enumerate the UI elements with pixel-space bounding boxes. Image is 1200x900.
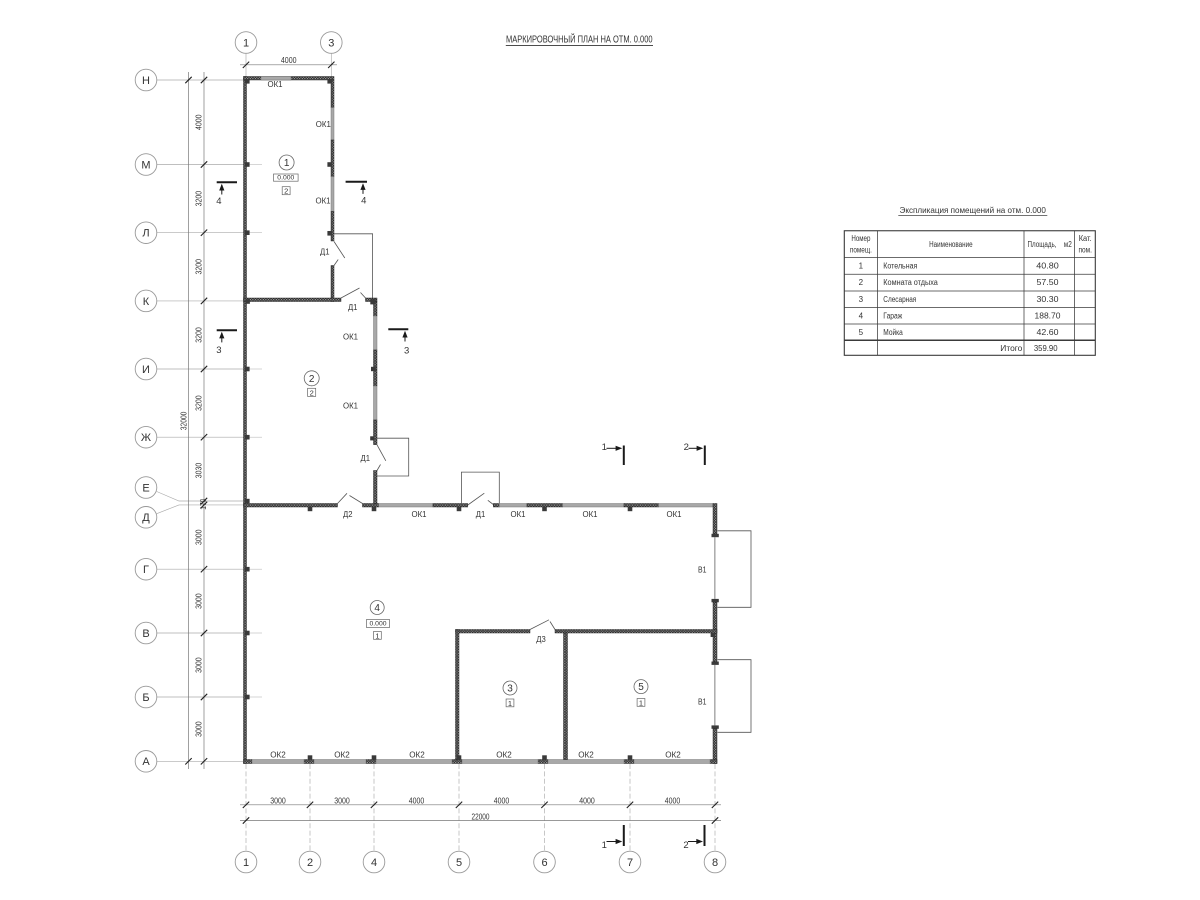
svg-text:Д1: Д1: [320, 247, 330, 257]
svg-text:4: 4: [216, 196, 221, 207]
svg-text:Экспликация помещений на отм.: Экспликация помещений на отм. 0.000: [900, 205, 1046, 215]
svg-text:3: 3: [404, 345, 409, 356]
svg-text:Ж: Ж: [141, 432, 151, 444]
svg-text:2: 2: [683, 840, 688, 851]
svg-text:помещ.: помещ.: [850, 245, 872, 254]
svg-text:Площадь,: Площадь,: [1028, 240, 1057, 249]
svg-text:ОК2: ОК2: [578, 749, 594, 759]
svg-text:Е: Е: [142, 482, 149, 494]
svg-text:5: 5: [859, 328, 864, 337]
svg-text:ОК1: ОК1: [316, 195, 331, 205]
svg-text:3: 3: [859, 295, 864, 304]
svg-text:В: В: [142, 628, 149, 640]
svg-text:4000: 4000: [494, 797, 510, 806]
svg-text:ОК1: ОК1: [268, 79, 283, 89]
svg-text:0.000: 0.000: [277, 175, 294, 182]
svg-text:1: 1: [859, 262, 864, 271]
svg-text:4000: 4000: [409, 797, 425, 806]
svg-text:5: 5: [638, 682, 644, 693]
svg-text:359.90: 359.90: [1034, 344, 1058, 353]
svg-text:ОК2: ОК2: [409, 749, 425, 759]
svg-text:8: 8: [712, 857, 718, 869]
svg-text:ОК1: ОК1: [511, 509, 526, 519]
svg-text:В1: В1: [698, 565, 707, 575]
svg-text:Б: Б: [142, 692, 149, 704]
svg-text:Слесарная: Слесарная: [883, 295, 916, 304]
svg-text:1: 1: [284, 158, 290, 169]
svg-text:Мойка: Мойка: [883, 328, 903, 337]
svg-text:Д1: Д1: [476, 509, 486, 519]
svg-text:2: 2: [310, 388, 314, 397]
svg-text:0.000: 0.000: [370, 620, 387, 627]
svg-text:Г: Г: [143, 564, 149, 576]
svg-text:1: 1: [375, 631, 379, 640]
svg-text:К: К: [143, 296, 150, 308]
svg-text:1: 1: [602, 442, 607, 453]
svg-text:ОК1: ОК1: [343, 332, 358, 342]
svg-text:В1: В1: [698, 696, 707, 706]
svg-text:1: 1: [602, 840, 607, 851]
svg-text:3000: 3000: [334, 797, 350, 806]
svg-text:2: 2: [684, 442, 689, 453]
svg-text:Д3: Д3: [536, 634, 546, 644]
svg-text:Итого: Итого: [1000, 344, 1023, 353]
svg-text:3200: 3200: [194, 327, 203, 343]
svg-text:Л: Л: [142, 228, 149, 240]
svg-text:1: 1: [243, 37, 249, 49]
svg-text:ОК1: ОК1: [412, 509, 427, 519]
svg-text:3: 3: [507, 684, 513, 695]
svg-text:42.60: 42.60: [1037, 328, 1060, 337]
svg-text:30.30: 30.30: [1037, 295, 1060, 304]
svg-text:ОК1: ОК1: [316, 119, 331, 129]
svg-text:57.50: 57.50: [1037, 278, 1060, 287]
svg-text:Д: Д: [142, 512, 150, 524]
svg-text:3200: 3200: [194, 395, 203, 411]
svg-text:А: А: [142, 756, 150, 768]
svg-text:ОК1: ОК1: [583, 509, 598, 519]
svg-text:4000: 4000: [281, 56, 297, 65]
svg-text:Комната отдыха: Комната отдыха: [883, 278, 938, 287]
svg-text:Д1: Д1: [361, 453, 371, 463]
svg-text:ОК2: ОК2: [270, 749, 286, 759]
svg-text:2: 2: [284, 187, 288, 196]
svg-text:2: 2: [307, 857, 313, 869]
svg-text:4: 4: [374, 603, 380, 614]
svg-text:7: 7: [627, 857, 633, 869]
svg-text:188.70: 188.70: [1035, 312, 1062, 321]
svg-text:3000: 3000: [270, 797, 286, 806]
svg-text:1: 1: [243, 857, 249, 869]
svg-text:3200: 3200: [194, 190, 203, 206]
svg-text:Номер: Номер: [851, 234, 870, 243]
svg-text:3030: 3030: [194, 462, 203, 478]
svg-text:4000: 4000: [665, 797, 681, 806]
svg-text:3: 3: [328, 37, 334, 49]
svg-text:4000: 4000: [194, 114, 203, 130]
svg-text:Н: Н: [142, 75, 150, 87]
svg-text:м2: м2: [1064, 240, 1072, 249]
svg-text:Наименование: Наименование: [929, 240, 973, 249]
svg-text:40.80: 40.80: [1036, 262, 1059, 271]
svg-text:6: 6: [541, 857, 547, 869]
svg-text:Д1: Д1: [348, 302, 358, 312]
svg-text:3000: 3000: [194, 657, 203, 673]
svg-text:ОК2: ОК2: [665, 749, 681, 759]
svg-text:3000: 3000: [194, 529, 203, 545]
svg-text:22000: 22000: [472, 812, 490, 821]
svg-text:4000: 4000: [579, 797, 595, 806]
svg-text:Котельная: Котельная: [883, 262, 917, 271]
svg-text:ОК1: ОК1: [667, 509, 682, 519]
svg-text:3000: 3000: [194, 721, 203, 737]
svg-text:32000: 32000: [179, 411, 188, 430]
svg-text:Гараж: Гараж: [883, 312, 903, 321]
svg-text:МАРКИРОВОЧНЫЙ ПЛАН НА ОТМ. 0.0: МАРКИРОВОЧНЫЙ ПЛАН НА ОТМ. 0.000: [506, 34, 653, 46]
svg-text:Кат.: Кат.: [1079, 234, 1092, 243]
svg-text:М: М: [141, 159, 150, 171]
svg-text:пом.: пом.: [1078, 245, 1092, 254]
svg-text:4: 4: [371, 857, 377, 869]
svg-text:5: 5: [456, 857, 462, 869]
svg-text:3000: 3000: [194, 593, 203, 609]
svg-text:1: 1: [508, 699, 512, 708]
svg-text:Д2: Д2: [343, 509, 353, 519]
svg-text:2: 2: [309, 374, 315, 385]
svg-text:ОК2: ОК2: [496, 749, 512, 759]
svg-text:ОК2: ОК2: [334, 749, 350, 759]
svg-text:4: 4: [859, 312, 864, 321]
svg-text:ОК1: ОК1: [343, 401, 358, 411]
svg-text:1: 1: [639, 698, 643, 707]
svg-text:3: 3: [216, 345, 221, 356]
svg-text:4: 4: [361, 196, 366, 207]
svg-text:И: И: [142, 364, 150, 376]
svg-text:170: 170: [199, 498, 208, 509]
svg-text:2: 2: [859, 278, 864, 287]
svg-text:3200: 3200: [194, 259, 203, 275]
